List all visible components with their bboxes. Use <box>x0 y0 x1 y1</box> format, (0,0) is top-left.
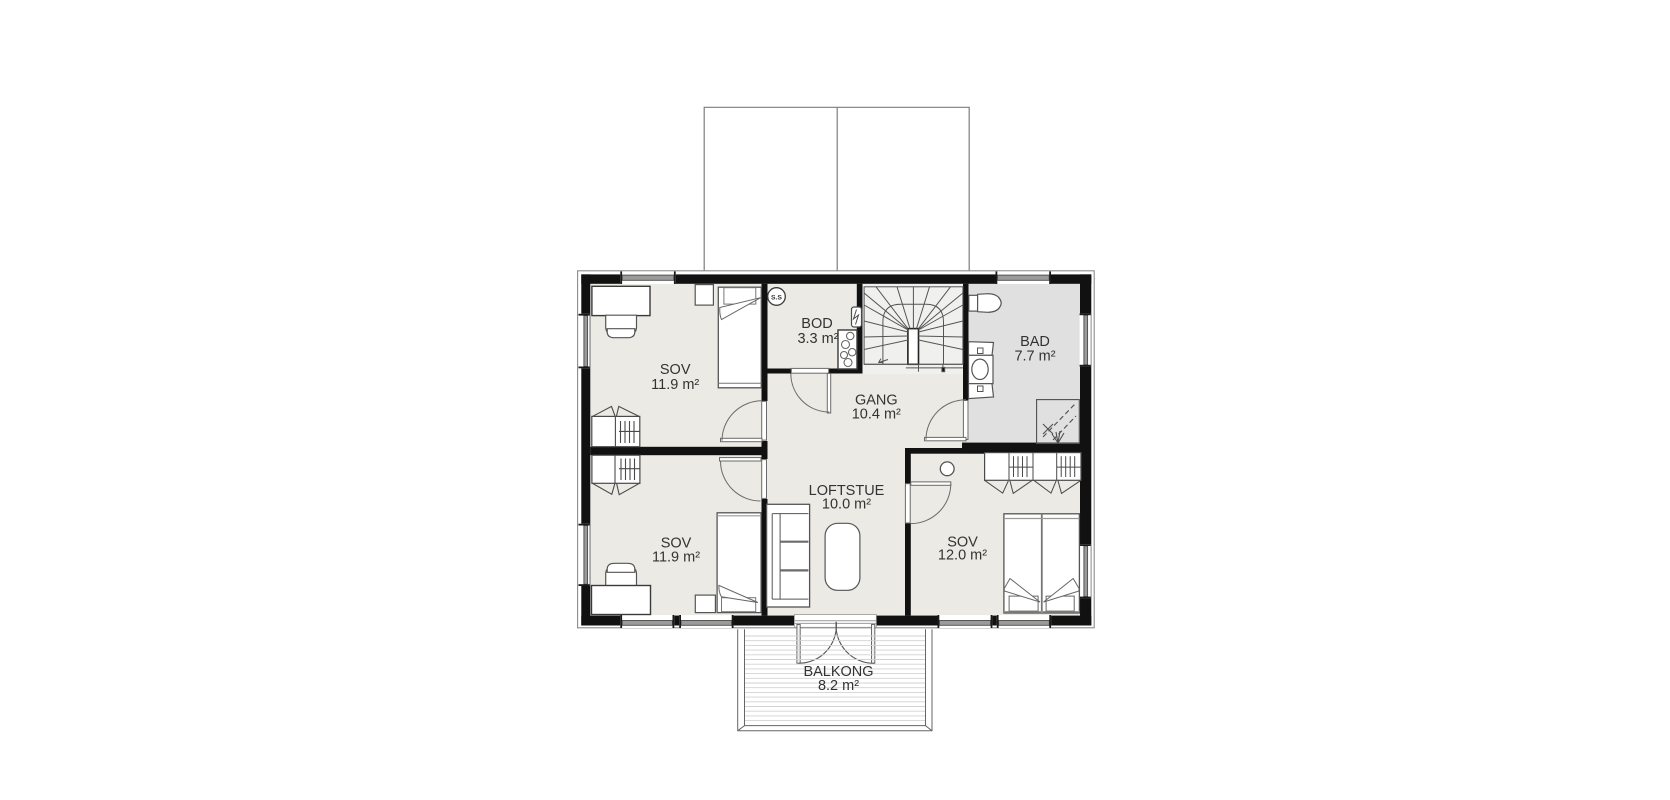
svg-text:10.4 m²: 10.4 m² <box>852 407 901 423</box>
svg-text:SOV: SOV <box>660 362 691 378</box>
svg-text:11.9 m²: 11.9 m² <box>651 377 699 393</box>
svg-text:8.2 m²: 8.2 m² <box>818 678 859 694</box>
svg-text:11.9 m²: 11.9 m² <box>652 549 700 565</box>
svg-text:S.S: S.S <box>771 294 782 301</box>
svg-text:3.3 m²: 3.3 m² <box>797 331 838 347</box>
svg-text:7.7 m²: 7.7 m² <box>1014 348 1055 364</box>
svg-text:10.0 m²: 10.0 m² <box>822 497 871 513</box>
svg-text:BOD: BOD <box>801 316 832 332</box>
svg-text:12.0 m²: 12.0 m² <box>938 548 987 564</box>
